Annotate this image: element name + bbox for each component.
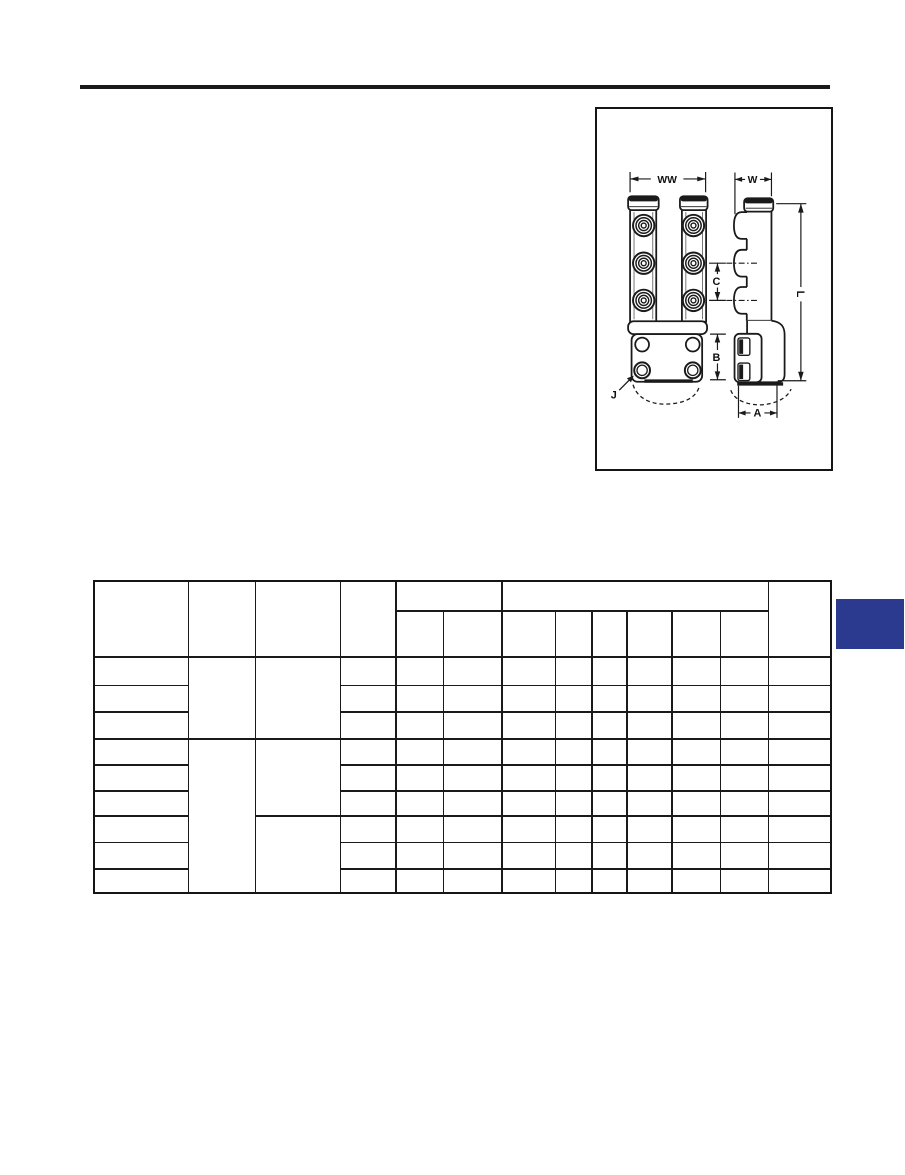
- side-cap-band: [745, 199, 773, 204]
- front-left-cap-band: [629, 197, 658, 202]
- dim-label-ww: WW: [657, 175, 677, 186]
- page-edge-tab: [836, 599, 904, 649]
- grid-hline: [340, 764, 831, 766]
- grid-hline: [95, 815, 188, 817]
- grid-vline: [555, 610, 557, 892]
- spec-table: [93, 580, 832, 894]
- front-crossbar: [628, 321, 707, 334]
- bolt-heads: [633, 215, 704, 311]
- clamp-slot-bar: [739, 339, 743, 353]
- arrow: [630, 176, 638, 181]
- arrow: [770, 410, 777, 415]
- grid-vline: [443, 610, 445, 892]
- arrow: [715, 334, 721, 342]
- grid-hline: [340, 711, 831, 713]
- front-break-line: [633, 385, 700, 404]
- grid-vline: [720, 610, 722, 892]
- bolt: [683, 215, 704, 236]
- dim-label-w: W: [748, 175, 758, 186]
- grid-hline: [95, 711, 188, 713]
- bolt: [683, 253, 704, 274]
- arrow: [738, 410, 745, 415]
- dim-label-b: B: [713, 352, 721, 364]
- grid-vline: [768, 582, 770, 892]
- arrow: [715, 371, 721, 379]
- front-right-cap-band: [681, 197, 707, 202]
- clamp-slot-bar: [739, 365, 743, 379]
- side-break-line: [731, 389, 791, 405]
- arrow: [798, 204, 804, 213]
- arrow: [715, 292, 721, 300]
- bolt: [633, 290, 654, 311]
- grid-hline: [95, 656, 830, 658]
- bolt: [633, 215, 654, 236]
- j-leader-line: [619, 379, 630, 390]
- grid-vline: [626, 610, 628, 892]
- grid-vline: [591, 610, 593, 892]
- grid-hline: [340, 790, 831, 792]
- grid-hline: [95, 738, 830, 740]
- grid-vline: [501, 582, 503, 892]
- grid-vline: [255, 582, 257, 892]
- grid-vline: [671, 610, 673, 892]
- grid-hline: [95, 764, 188, 766]
- grid-hline: [395, 610, 769, 612]
- grid-hline: [340, 685, 831, 687]
- pad-hole: [686, 338, 700, 352]
- dim-label-j: J: [611, 390, 617, 402]
- diagram-frame: WW W C B L A J: [595, 107, 833, 471]
- pad-hole: [635, 338, 649, 352]
- bolt: [633, 253, 654, 274]
- grid-hline: [95, 685, 188, 687]
- grid-vline: [188, 582, 190, 892]
- arrow: [735, 177, 742, 182]
- header-rule: [80, 85, 830, 89]
- grid-hline: [95, 868, 188, 870]
- grid-hline: [95, 790, 188, 792]
- arrow: [715, 263, 721, 271]
- bolt: [683, 290, 704, 311]
- grid-hline: [340, 868, 831, 870]
- dim-label-l: L: [794, 291, 806, 298]
- grid-hline: [95, 842, 188, 844]
- dim-label-a: A: [754, 407, 762, 419]
- side-bump: [734, 212, 747, 239]
- arrow: [798, 372, 804, 381]
- arrow: [764, 177, 771, 182]
- grid-vline: [395, 582, 397, 892]
- connector-diagram: WW W C B L A J: [597, 109, 831, 469]
- grid-vline: [340, 582, 342, 892]
- grid-hline: [340, 842, 831, 844]
- dim-label-c: C: [713, 276, 721, 288]
- catalog-page: WW W C B L A J: [0, 0, 905, 1175]
- side-view: [734, 198, 785, 384]
- grid-hline: [255, 815, 831, 817]
- arrow: [697, 176, 705, 181]
